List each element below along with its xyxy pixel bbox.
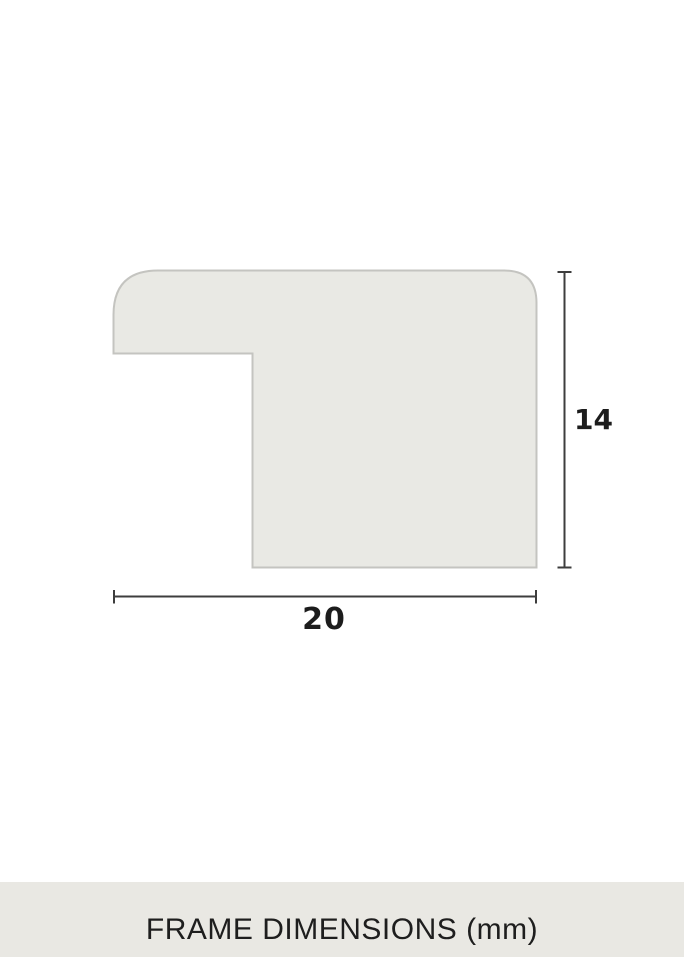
height-dimension-line [558,272,572,568]
footer-caption: FRAME DIMENSIONS (mm) [146,913,538,947]
footer-caption-bar: FRAME DIMENSIONS (mm) [0,882,684,957]
width-dimension-label: 20 [302,604,346,636]
frame-dimensions-diagram: 14 20 FRAME DIMENSIONS (mm) [0,0,684,957]
frame-profile-shape [114,271,537,568]
height-dimension-label: 14 [574,404,613,436]
profile-drawing [0,0,684,957]
